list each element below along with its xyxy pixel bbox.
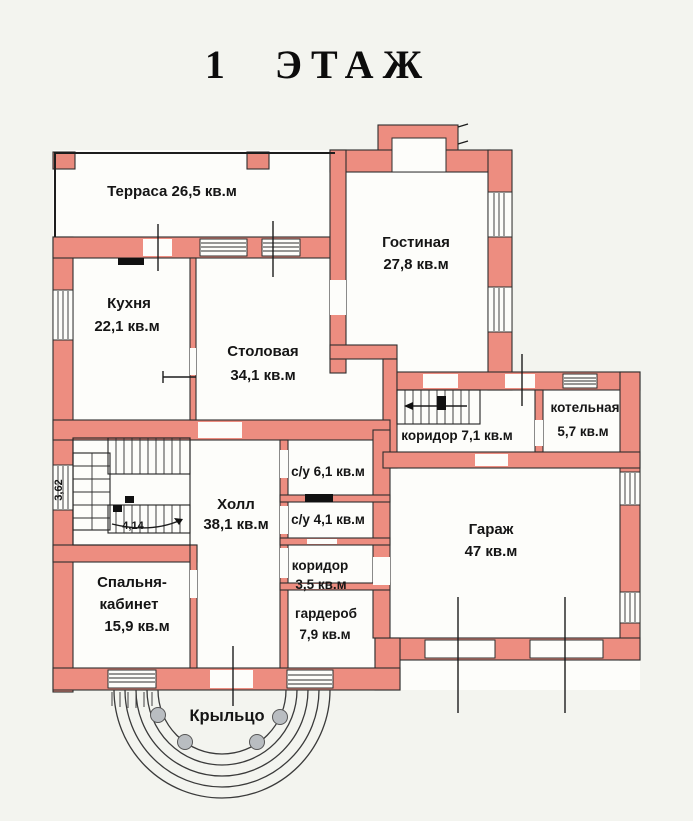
floor-plan-page: 1 ЭТАЖ (0, 0, 693, 821)
porch-column (178, 735, 193, 750)
window-terrace-2 (262, 239, 300, 256)
door-small-corridor-garage (373, 557, 390, 585)
window-garage-2 (620, 592, 640, 623)
porch-column (273, 710, 288, 725)
porch-column (250, 735, 265, 750)
label-hall-name: Холл (217, 496, 255, 513)
label-boiler-name: котельная (550, 400, 619, 415)
garage-gate-left (425, 640, 495, 658)
label-dining-area: 34,1 кв.м (230, 367, 295, 384)
label-hall-area: 38,1 кв.м (203, 516, 268, 533)
door-bath1 (280, 450, 288, 478)
floor-plan-drawing: 1 ЭТАЖ (0, 0, 693, 821)
label-kitchen-area: 22,1 кв.м (94, 318, 159, 335)
fireplace-niche (392, 138, 446, 172)
label-porch: Крыльцо (189, 707, 264, 725)
label-terrace: Терраса 26,5 кв.м (107, 183, 237, 200)
window-garage-1 (620, 472, 640, 505)
label-wardrobe-name: гардероб (295, 606, 357, 621)
label-corridor-small-name: коридор (292, 558, 348, 573)
label-stair-width-dim: 3,62 (53, 479, 65, 500)
label-bedroom-line2: кабинет (100, 596, 159, 613)
door-corridor-small (280, 548, 288, 578)
label-living-name: Гостиная (382, 234, 450, 251)
label-wardrobe-area: 7,9 кв.м (299, 627, 350, 642)
label-bedroom-line1: Спальня- (97, 574, 167, 591)
label-garage-area: 47 кв.м (465, 543, 518, 560)
label-corridor-small-area: 3,5 кв.м (295, 577, 346, 592)
door-dining-hall (198, 422, 242, 438)
garage-gate-right (530, 640, 603, 658)
label-bathroom-1: с/у 6,1 кв.м (291, 464, 365, 479)
door-back-entrance (505, 374, 535, 388)
door-living-corridor (423, 374, 458, 388)
door-bath2-corridor (307, 539, 337, 544)
label-boiler-area: 5,7 кв.м (557, 424, 608, 439)
door-bath2 (280, 506, 288, 534)
label-garage-name: Гараж (469, 521, 514, 538)
label-bedroom-area: 15,9 кв.м (104, 618, 169, 635)
window-terrace-1 (200, 239, 247, 256)
label-corridor-back: коридор 7,1 кв.м (401, 428, 513, 443)
window-kitchen-left (53, 290, 73, 340)
outside-steps (287, 670, 333, 688)
porch-column (151, 708, 166, 723)
label-kitchen-name: Кухня (107, 295, 151, 312)
door-kitchen-dining (190, 348, 196, 375)
door-corridor-garage (475, 454, 508, 466)
window-living-1 (488, 192, 512, 237)
door-boiler (535, 420, 543, 446)
window-living-2 (488, 287, 512, 332)
page-title: 1 ЭТАЖ (205, 42, 431, 87)
label-bathroom-2: с/у 4,1 кв.м (291, 512, 365, 527)
label-living-area: 27,8 кв.м (383, 256, 448, 273)
door-dining-living (330, 280, 346, 315)
door-bedroom (190, 570, 197, 598)
label-dining-name: Столовая (227, 343, 298, 360)
label-stair-run-dim: 4,14 (122, 520, 144, 532)
window-boiler (563, 374, 597, 388)
door-main-entrance (210, 670, 253, 688)
